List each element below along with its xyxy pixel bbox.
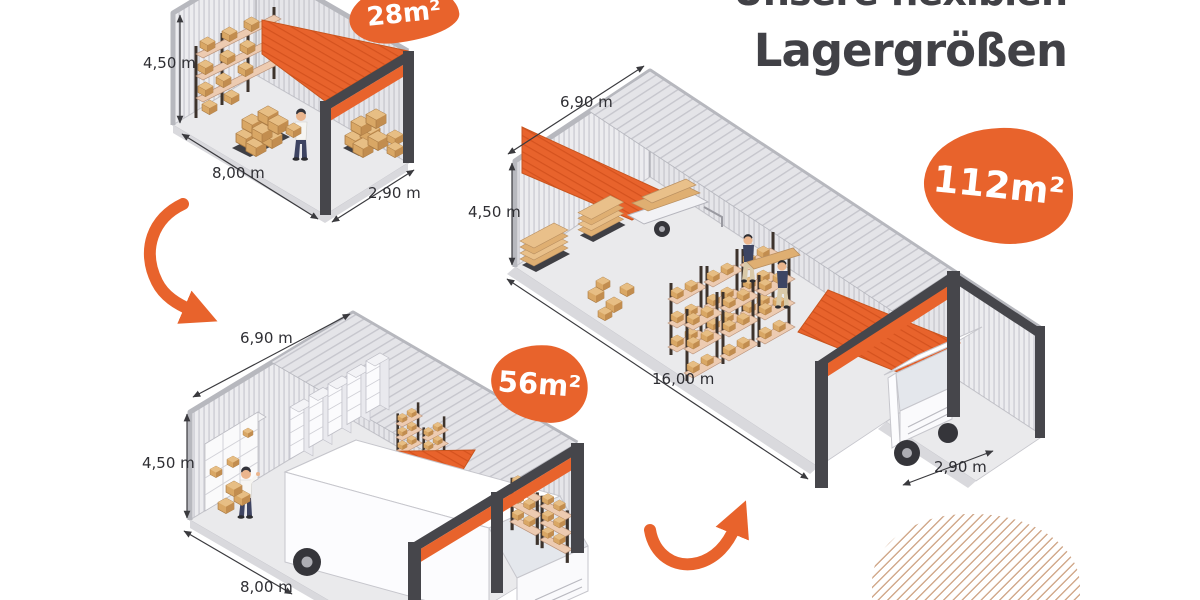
dimension-label-depth: 2,90 m [368, 184, 421, 202]
dimension-label-width: 16,00 m [652, 370, 714, 388]
warehouse-112-illustration: 6,90 m 4,50 m 16,00 m 2,90 m [460, 55, 1100, 500]
dimension-label-depth: 2,90 m [934, 458, 987, 476]
page-title: Lagergrößen [754, 28, 1067, 73]
dimension-label-height: 4,50 m [143, 54, 196, 72]
storage-sizes-infographic: 4,50 m 8,00 m 2,90 m [0, 0, 1200, 600]
dimension-label-height: 4,50 m [468, 203, 521, 221]
curved-arrow-up-right-icon [638, 470, 773, 588]
curved-arrow-down-right-icon [133, 198, 258, 333]
dimension-label-width: 8,00 m [212, 164, 265, 182]
dimension-label-width: 8,00 m [240, 578, 293, 596]
eyebrow-text: Unsere flexiblen [733, 0, 1067, 11]
dimension-label-height: 4,50 m [142, 454, 195, 472]
diagonal-stripes-blob [872, 514, 1080, 600]
dimension-label-back: 6,90 m [560, 93, 613, 111]
size-badge-28-label: 28m² [365, 0, 442, 32]
size-badge-56-label: 56m² [497, 364, 582, 404]
size-badge-112-label: 112m² [931, 157, 1067, 214]
